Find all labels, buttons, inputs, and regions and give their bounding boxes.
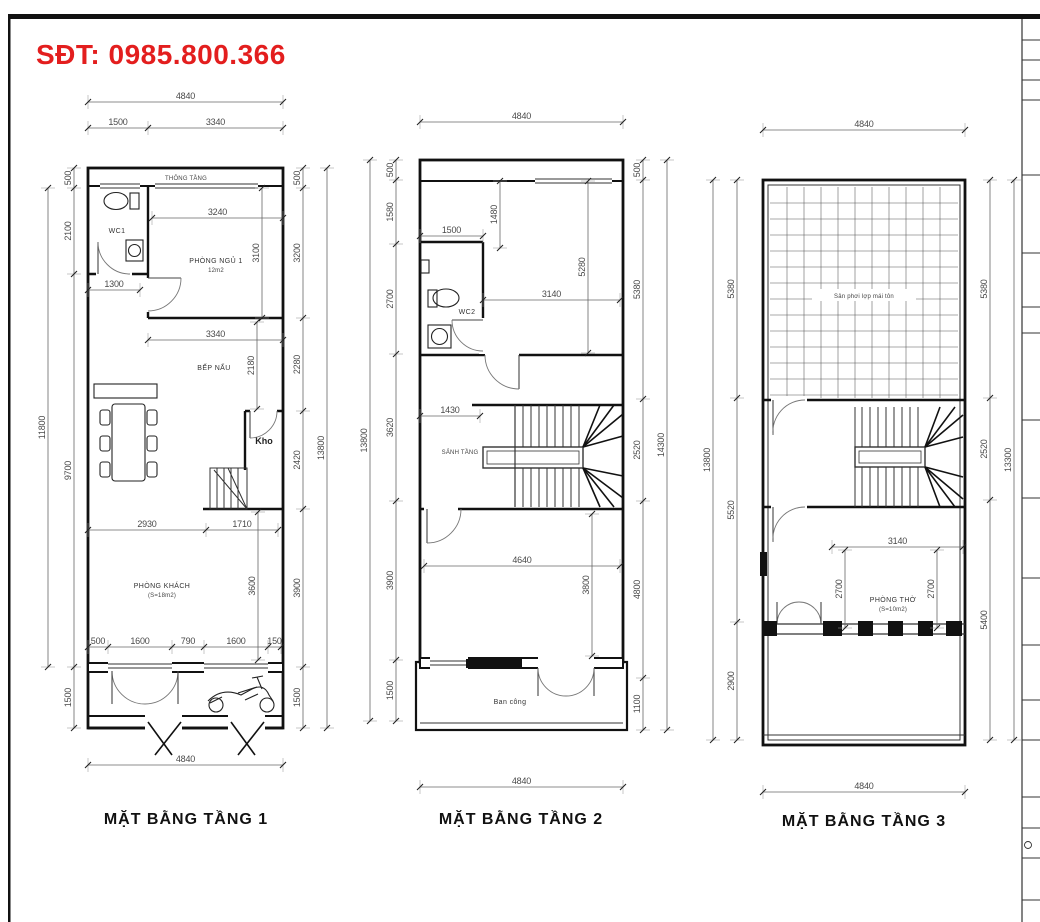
svg-text:1710: 1710 (232, 519, 251, 529)
svg-text:3600: 3600 (247, 576, 257, 595)
toilet-symbol-wc1 (104, 193, 139, 210)
svg-text:5380: 5380 (632, 280, 642, 299)
svg-text:2520: 2520 (632, 440, 642, 459)
floor1-room-labels: THÔNG TẦNG WC1 PHÒNG NGỦ 1 12m2 BẾP NẤU … (109, 175, 274, 599)
svg-text:2100: 2100 (63, 221, 73, 240)
svg-text:5280: 5280 (577, 257, 587, 276)
svg-text:14300: 14300 (656, 433, 666, 457)
svg-text:500: 500 (292, 171, 302, 186)
svg-text:3140: 3140 (888, 536, 907, 546)
svg-text:790: 790 (181, 636, 196, 646)
svg-text:3340: 3340 (206, 329, 225, 339)
dining-table (100, 404, 157, 481)
svg-text:500: 500 (385, 163, 395, 178)
storage-label: Kho (255, 436, 273, 446)
worship-label: PHÒNG THỜ (870, 595, 916, 604)
svg-text:4840: 4840 (512, 776, 531, 786)
void-label: THÔNG TẦNG (165, 175, 207, 182)
floor1-stairs (210, 468, 247, 509)
floor3-windows-doors (760, 396, 962, 636)
floor3-room-labels: PHÒNG THỜ (S=10m2) (870, 595, 916, 613)
svg-text:5380: 5380 (726, 279, 736, 298)
kitchen-counter (94, 384, 157, 398)
balcony-label: Ban công (494, 699, 527, 706)
svg-text:1300: 1300 (104, 279, 123, 289)
living-label: PHÒNG KHÁCH (134, 581, 191, 590)
svg-text:500: 500 (632, 163, 642, 178)
svg-text:9700: 9700 (63, 461, 73, 480)
svg-text:3900: 3900 (292, 578, 302, 597)
svg-text:3100: 3100 (251, 243, 261, 262)
svg-text:2180: 2180 (246, 356, 256, 375)
drawing-sheet: SĐT: 0985.800.366 (0, 0, 1040, 922)
svg-text:1500: 1500 (385, 681, 395, 700)
svg-text:1480: 1480 (489, 205, 499, 224)
svg-text:3900: 3900 (385, 571, 395, 590)
floor2-stairs (483, 405, 623, 507)
svg-text:5520: 5520 (726, 500, 736, 519)
svg-text:1500: 1500 (292, 688, 302, 707)
title-block-strip (1022, 40, 1040, 900)
svg-text:1580: 1580 (385, 202, 395, 221)
svg-text:4840: 4840 (512, 111, 531, 121)
svg-text:4800: 4800 (632, 580, 642, 599)
svg-text:2520: 2520 (979, 439, 989, 458)
floor-plan-2: WC2 SẢNH TẦNG Ban công 48401500314014304… (359, 111, 674, 828)
motorbike-symbol (208, 676, 274, 712)
bedroom1-area: 12m2 (208, 268, 224, 274)
sink-symbol-wc1 (126, 240, 143, 261)
svg-text:2700: 2700 (834, 579, 844, 598)
wc1-label: WC1 (109, 228, 126, 235)
svg-text:11800: 11800 (37, 416, 47, 440)
phone-number: SĐT: 0985.800.366 (36, 39, 286, 70)
svg-text:2420: 2420 (292, 450, 302, 469)
svg-text:3140: 3140 (542, 289, 561, 299)
floor2-caption: MẶT BẰNG TẦNG 2 (439, 809, 603, 828)
floor-plan-3: Sân phơi lợp mái tôn (702, 119, 1021, 830)
floor3-stairs (855, 407, 963, 507)
svg-text:2700: 2700 (926, 579, 936, 598)
svg-text:4840: 4840 (176, 91, 195, 101)
svg-text:1500: 1500 (108, 117, 127, 127)
svg-text:1600: 1600 (130, 636, 149, 646)
svg-text:500: 500 (91, 636, 106, 646)
svg-text:1500: 1500 (63, 688, 73, 707)
roof-label: Sân phơi lợp mái tôn (834, 294, 894, 300)
svg-text:13300: 13300 (1003, 448, 1013, 472)
svg-text:3340: 3340 (206, 117, 225, 127)
svg-text:13800: 13800 (359, 428, 369, 452)
svg-text:5380: 5380 (979, 279, 989, 298)
kitchen-label: BẾP NẤU (197, 362, 230, 372)
svg-text:1500: 1500 (442, 225, 461, 235)
svg-text:500: 500 (63, 171, 73, 186)
living-area: (S=18m2) (148, 593, 176, 599)
floor2-windows-doors (424, 176, 612, 696)
sink-symbol-wc2 (421, 260, 429, 273)
svg-text:1430: 1430 (440, 405, 459, 415)
toilet-symbol-wc2 (428, 289, 459, 307)
bedroom1-label: PHÒNG NGỦ 1 (189, 256, 242, 265)
svg-text:3800: 3800 (581, 575, 591, 594)
svg-text:4840: 4840 (854, 781, 873, 791)
svg-text:13800: 13800 (702, 448, 712, 472)
floor3-caption: MẶT BẰNG TẦNG 3 (782, 811, 946, 830)
svg-text:2700: 2700 (385, 289, 395, 308)
svg-text:3240: 3240 (208, 207, 227, 217)
svg-text:2900: 2900 (726, 671, 736, 690)
roof-grid: Sân phơi lợp mái tôn (770, 187, 958, 398)
svg-text:2280: 2280 (292, 355, 302, 374)
svg-text:5400: 5400 (979, 610, 989, 629)
worship-area: (S=10m2) (879, 607, 907, 613)
floor2-walls (416, 160, 627, 730)
svg-text:1600: 1600 (226, 636, 245, 646)
svg-text:2930: 2930 (137, 519, 156, 529)
floor3-dimensions: 4840314048401380053805520290027002700538… (702, 119, 1021, 799)
floor-plan-1: THÔNG TẦNG WC1 PHÒNG NGỦ 1 12m2 BẾP NẤU … (37, 91, 334, 828)
svg-text:4840: 4840 (854, 119, 873, 129)
floor1-caption: MẶT BẰNG TẦNG 1 (104, 809, 268, 828)
wc2-label: WC2 (459, 309, 476, 316)
svg-text:3620: 3620 (385, 418, 395, 437)
svg-text:150: 150 (267, 636, 282, 646)
svg-text:1100: 1100 (632, 695, 642, 714)
svg-text:3200: 3200 (292, 243, 302, 262)
svg-text:4840: 4840 (176, 754, 195, 764)
washer-symbol-wc2 (428, 325, 451, 348)
floor3-walls (763, 180, 965, 745)
svg-text:13800: 13800 (316, 436, 326, 460)
hall-label: SẢNH TẦNG (442, 449, 479, 456)
svg-text:4640: 4640 (512, 555, 531, 565)
floor-plan-canvas: SĐT: 0985.800.366 (0, 0, 1040, 922)
